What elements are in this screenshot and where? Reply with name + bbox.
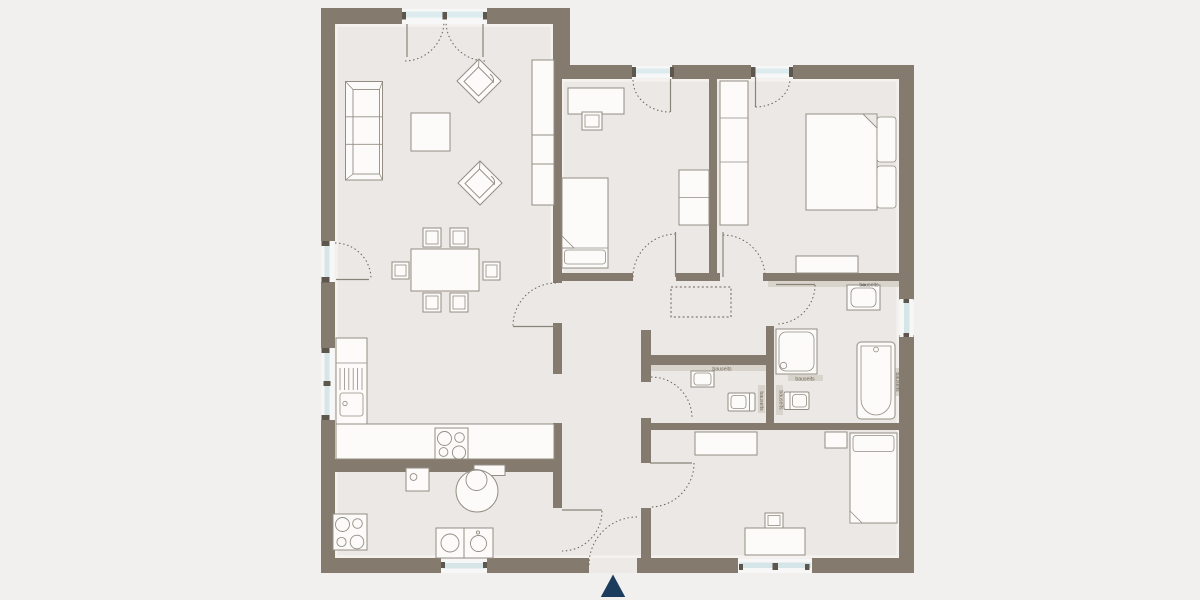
svg-text:bauseits: bauseits xyxy=(778,390,784,410)
svg-text:bauseits: bauseits xyxy=(712,366,732,372)
svg-text:bauseits: bauseits xyxy=(894,372,900,392)
svg-text:bauseits: bauseits xyxy=(795,376,815,382)
svg-text:bauseits: bauseits xyxy=(859,282,879,288)
svg-text:bauseits: bauseits xyxy=(758,391,764,411)
